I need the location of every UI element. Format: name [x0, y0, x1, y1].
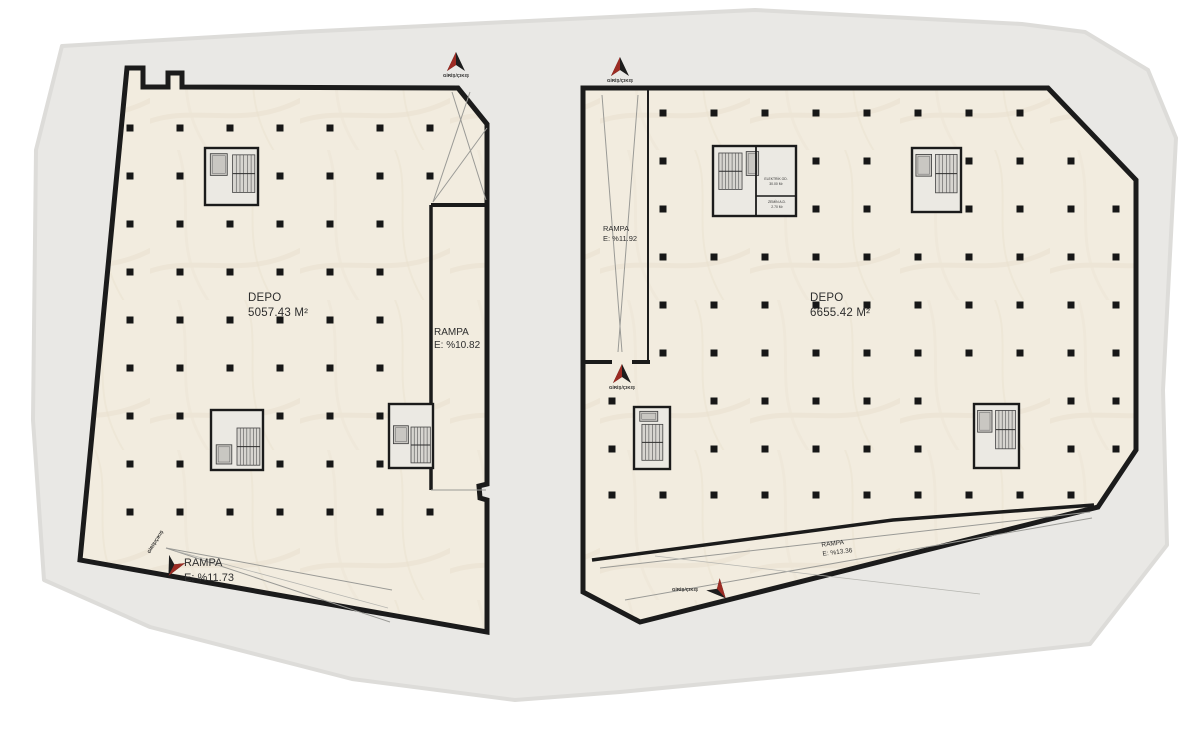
building-left-floor: [80, 68, 487, 632]
floor-plan-svg: ELEKTRİK OD. 30.00 M² ZEMİN A.D. 2.70 M²: [0, 0, 1200, 747]
ramp-slope: E: %10.82: [434, 340, 480, 351]
room-area-zemin: 2.70 M²: [771, 205, 783, 209]
depo-label-left: DEPO5057.43 M²: [248, 291, 308, 321]
depo-title-left: DEPO: [248, 292, 281, 304]
entrance-label-right-top: GİRİŞ/ÇIKIŞ: [597, 78, 643, 84]
ramp-label-left-side: RAMPAE: %10.82: [434, 326, 480, 352]
floor-plan-canvas: ELEKTRİK OD. 30.00 M² ZEMİN A.D. 2.70 M²…: [0, 0, 1200, 747]
room-label-elektrik: ELEKTRİK OD.: [764, 176, 787, 181]
entrance-label-left-top: GİRİŞ/ÇIKIŞ: [433, 73, 479, 79]
depo-label-right: DEPO6655.42 M²: [810, 291, 870, 321]
stair-core: [912, 148, 961, 212]
building-left: [80, 68, 487, 632]
entrance-label-right-bottom: GİRİŞ/ÇIKIŞ: [662, 587, 708, 593]
room-label-zemin: ZEMİN A.D.: [768, 199, 786, 204]
stair-core: [211, 410, 263, 470]
depo-title-right: DEPO: [810, 292, 843, 304]
ramp-label-right-side: RAMPAE: %11.92: [603, 224, 637, 244]
stair-core: [634, 407, 670, 469]
stair-core: [389, 404, 433, 468]
ramp-title: RAMPA: [434, 327, 469, 338]
stair-core: [713, 146, 796, 216]
entrance-label-right-middle: GİRİŞ/ÇIKIŞ: [599, 385, 645, 391]
ramp-title: RAMPA: [184, 557, 222, 569]
stair-core: [974, 404, 1019, 468]
stair-core: [205, 148, 258, 205]
ramp-slope: E: %13.36: [822, 547, 853, 558]
depo-area-left: 5057.43 M²: [248, 307, 308, 319]
depo-area-right: 6655.42 M²: [810, 307, 870, 319]
ramp-title: RAMPA: [603, 224, 629, 233]
ramp-label-left-bottom: RAMPAE: %11.73: [184, 556, 234, 585]
room-area-elektrik: 30.00 M²: [769, 182, 783, 186]
ramp-label-right-bottom: RAMPAE: %13.36: [821, 538, 853, 559]
ramp-slope: E: %11.73: [184, 572, 234, 584]
ramp-slope: E: %11.92: [603, 234, 637, 243]
